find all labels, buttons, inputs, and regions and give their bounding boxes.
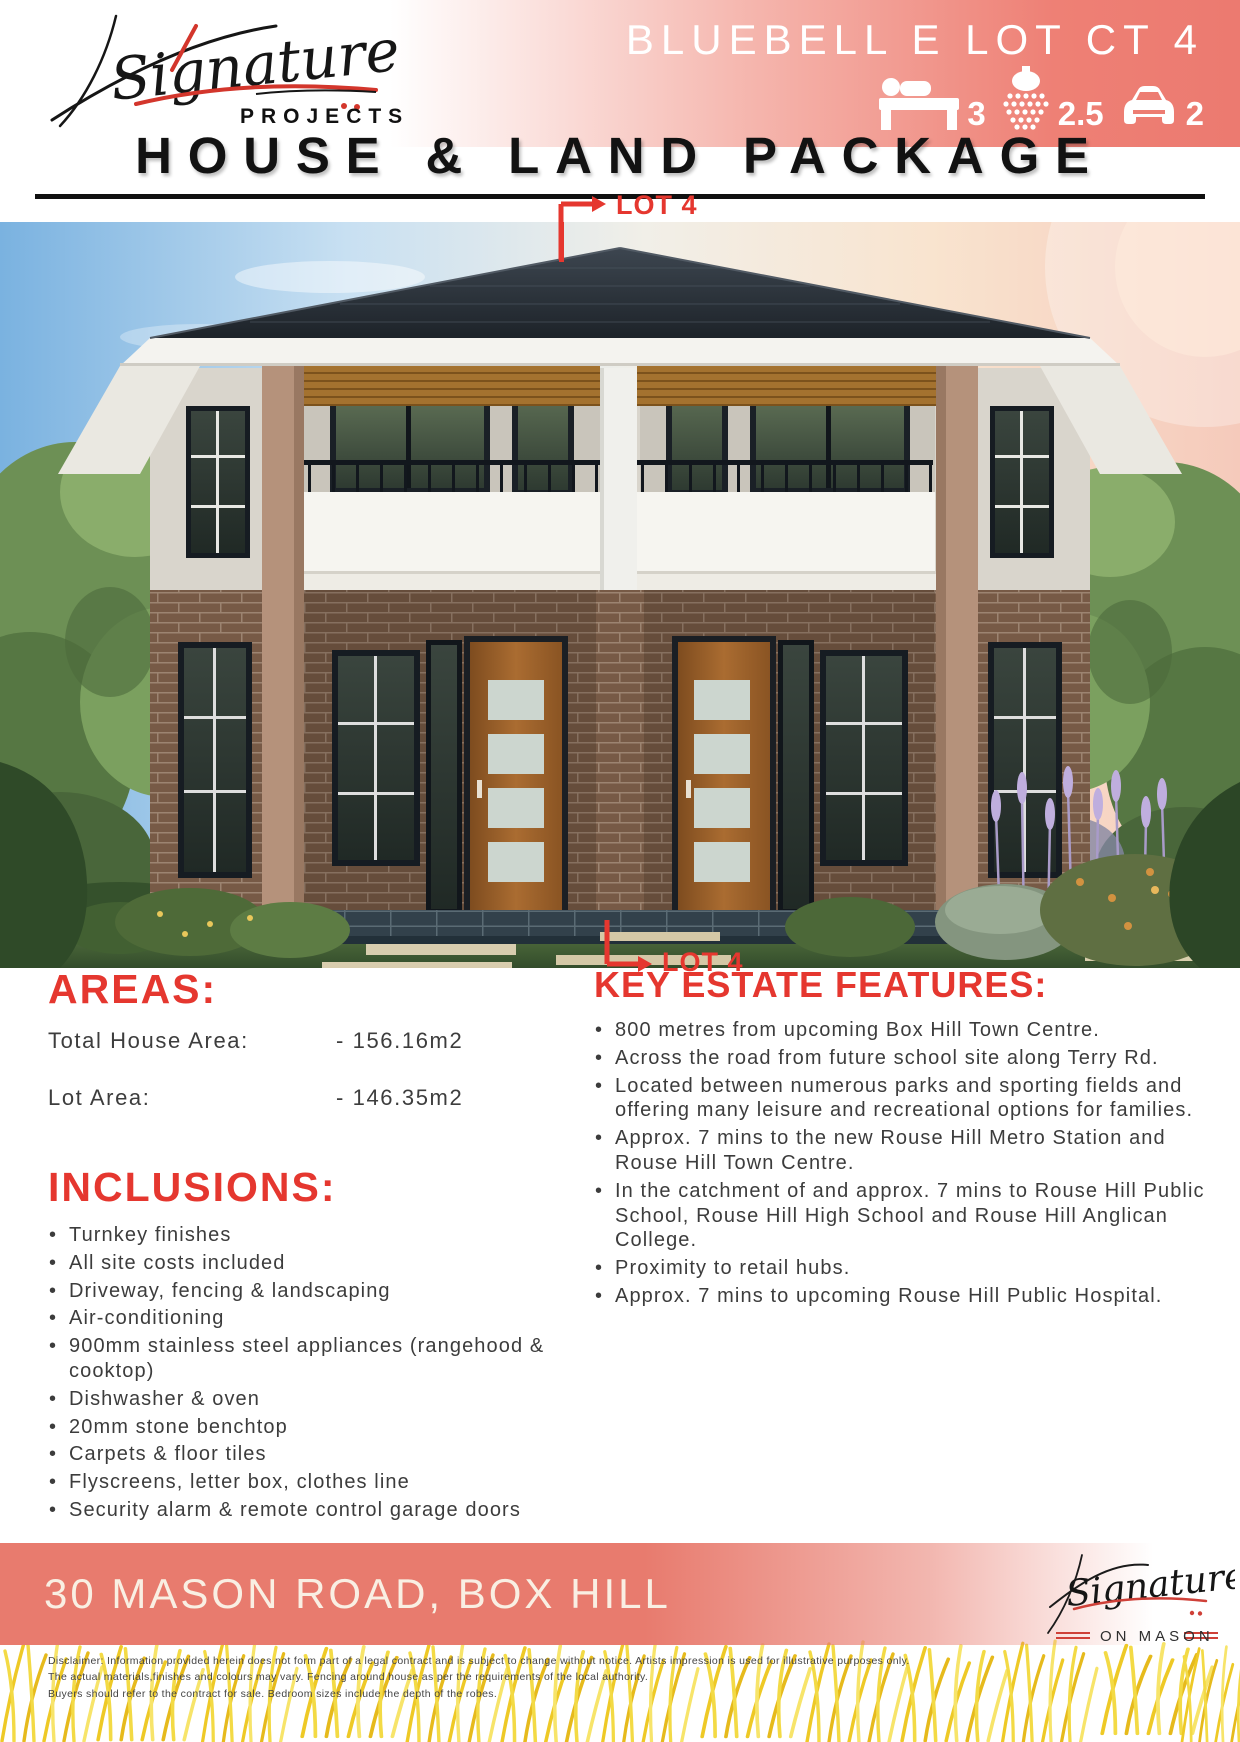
house-render bbox=[0, 222, 1240, 968]
shower-icon bbox=[1000, 66, 1052, 130]
bathrooms-stat: 2.5 bbox=[1000, 66, 1104, 130]
disclaimer-line: The actual materials,finishes and colour… bbox=[48, 1669, 1168, 1685]
key-feature-item: Approx. 7 mins to the new Rouse Hill Met… bbox=[594, 1126, 1220, 1176]
inclusions-list: Turnkey finishesAll site costs includedD… bbox=[48, 1223, 568, 1523]
brand-logo: Signature PROJECTS bbox=[44, 6, 424, 133]
disclaimer-line: Buyers should refer to the contract for … bbox=[48, 1686, 1168, 1702]
inclusion-item: Air-conditioning bbox=[48, 1306, 568, 1331]
ground-window-left-unit bbox=[332, 650, 420, 866]
front-door-left bbox=[426, 636, 568, 914]
package-title: HOUSE & LAND PACKAGE bbox=[35, 126, 1205, 185]
key-feature-item: Proximity to retail hubs. bbox=[594, 1256, 1220, 1281]
signature-projects-logo: Signature PROJECTS bbox=[44, 6, 424, 128]
areas-rows: Total House Area: - 156.16m2 Lot Area: -… bbox=[48, 1028, 538, 1111]
brand-sub: PROJECTS bbox=[240, 105, 409, 128]
area-label: Total House Area: bbox=[48, 1028, 336, 1054]
inclusion-item: Carpets & floor tiles bbox=[48, 1442, 568, 1467]
ground-window-far-right bbox=[988, 642, 1062, 878]
ground-window-right-unit bbox=[820, 650, 908, 866]
car-icon bbox=[1118, 84, 1180, 130]
inclusion-item: Security alarm & remote control garage d… bbox=[48, 1498, 568, 1523]
property-address: 30 MASON ROAD, BOX HILL bbox=[44, 1543, 671, 1645]
footer-brand-sub: ON MASON bbox=[1100, 1628, 1214, 1645]
key-features-list: 800 metres from upcoming Box Hill Town C… bbox=[594, 1018, 1220, 1309]
upper-window-far-left bbox=[186, 406, 250, 558]
inclusions-section: INCLUSIONS: Turnkey finishesAll site cos… bbox=[48, 1164, 568, 1526]
lot-label-bottom: LOT 4 bbox=[602, 918, 744, 974]
on-mason-logo: Signature ON MASON bbox=[1040, 1545, 1235, 1658]
lot-label-top-text: LOT 4 bbox=[616, 190, 698, 221]
inclusion-item: Driveway, fencing & landscaping bbox=[48, 1279, 568, 1304]
inclusion-item: Flyscreens, letter box, clothes line bbox=[48, 1470, 568, 1495]
key-feature-item: Approx. 7 mins to upcoming Rouse Hill Pu… bbox=[594, 1284, 1220, 1309]
inclusion-item: All site costs included bbox=[48, 1251, 568, 1276]
package-title-underline: HOUSE & LAND PACKAGE bbox=[35, 126, 1205, 199]
disclaimer: Disclaimer: Information provided herein … bbox=[48, 1653, 1168, 1702]
area-value: - 146.35m2 bbox=[336, 1085, 463, 1111]
plan-title: BLUEBELL E LOT CT 4 bbox=[626, 16, 1204, 64]
bedrooms-stat: 3 bbox=[877, 74, 985, 130]
area-value: - 156.16m2 bbox=[336, 1028, 463, 1054]
key-feature-item: In the catchment of and approx. 7 mins t… bbox=[594, 1179, 1220, 1253]
upper-window-far-right bbox=[990, 406, 1054, 558]
ground-window-far-left bbox=[178, 642, 252, 878]
area-row: Lot Area: - 146.35m2 bbox=[48, 1085, 538, 1111]
area-row: Total House Area: - 156.16m2 bbox=[48, 1028, 538, 1054]
key-feature-item: Located between numerous parks and sport… bbox=[594, 1074, 1220, 1124]
cars-stat: 2 bbox=[1118, 84, 1204, 130]
inclusion-item: 900mm stainless steel appliances (rangeh… bbox=[48, 1334, 568, 1384]
inclusions-heading: INCLUSIONS: bbox=[48, 1164, 568, 1211]
disclaimer-line: Disclaimer: Information provided herein … bbox=[48, 1653, 1168, 1669]
key-features-section: KEY ESTATE FEATURES: 800 metres from upc… bbox=[594, 964, 1220, 1312]
lot-arrow-down-icon bbox=[556, 190, 608, 262]
key-feature-item: Across the road from future school site … bbox=[594, 1046, 1220, 1071]
lot-label-top: LOT 4 bbox=[556, 190, 698, 262]
inclusion-item: 20mm stone benchtop bbox=[48, 1415, 568, 1440]
key-feature-item: 800 metres from upcoming Box Hill Town C… bbox=[594, 1018, 1220, 1043]
bed-icon bbox=[877, 74, 961, 130]
signature-on-mason-logo: Signature ON MASON bbox=[1040, 1545, 1235, 1653]
house-illustration bbox=[0, 222, 1240, 968]
inclusion-item: Turnkey finishes bbox=[48, 1223, 568, 1248]
inclusion-item: Dishwasher & oven bbox=[48, 1387, 568, 1412]
stats-row: 3 2.5 2 bbox=[877, 66, 1204, 130]
areas-heading: AREAS: bbox=[48, 966, 538, 1013]
lot-arrow-up-icon bbox=[602, 918, 654, 974]
front-door-right bbox=[672, 636, 814, 914]
lot-label-bottom-text: LOT 4 bbox=[662, 947, 744, 978]
area-label: Lot Area: bbox=[48, 1085, 336, 1111]
flyer-page: Signature PROJECTS BLUEBELL E LOT CT 4 3 bbox=[0, 0, 1240, 1742]
areas-section: AREAS: Total House Area: - 156.16m2 Lot … bbox=[48, 966, 538, 1111]
